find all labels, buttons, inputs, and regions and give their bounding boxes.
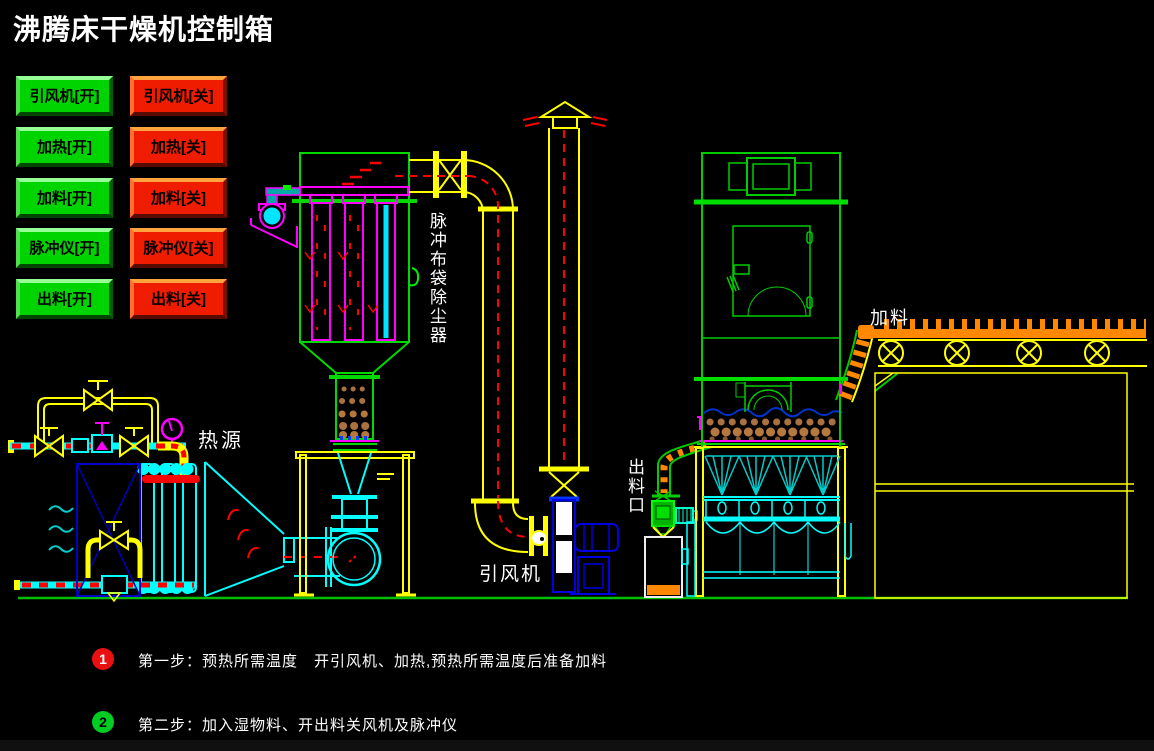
induced-fan-unit [553, 500, 618, 594]
filter-bags [310, 195, 397, 340]
step-2-text: 第二步：加入湿物料、开出料关风机及脉冲仪 [138, 714, 458, 735]
plant-diagram [0, 0, 1154, 751]
bottom-strip [0, 740, 1154, 751]
discharge-unit [645, 441, 711, 597]
feed-conveyor [858, 324, 1147, 366]
discharge-port-label: 出料口 [622, 458, 647, 515]
step-2-badge: 2 [92, 711, 114, 733]
step-1-badge: 1 [92, 648, 114, 670]
feed-label: 加料 [870, 304, 910, 330]
heat-source-label: 热源 [198, 424, 244, 453]
airflow-marks [342, 163, 381, 184]
door-handle [734, 265, 749, 274]
pulse-blower [251, 204, 297, 248]
boiler-heat-source [8, 381, 344, 601]
cyclone-fan-unit [294, 444, 416, 595]
exhaust-stack [523, 102, 607, 499]
conveyor-rollers [879, 341, 1109, 365]
fluid-bed [682, 408, 851, 596]
dust-collector-label: 脉冲布袋除尘器 [424, 212, 449, 345]
induced-fan-label: 引风机 [479, 559, 542, 586]
exhaust-duct [395, 151, 548, 556]
spray-nozzles [705, 456, 840, 495]
drying-tower [694, 153, 848, 447]
bag-filter [251, 153, 418, 441]
product-box [875, 373, 1134, 598]
step-1-text: 第一步：预热所需温度 开引风机、加热,预热所需温度后准备加料 [138, 650, 607, 671]
tower-door [727, 226, 812, 316]
